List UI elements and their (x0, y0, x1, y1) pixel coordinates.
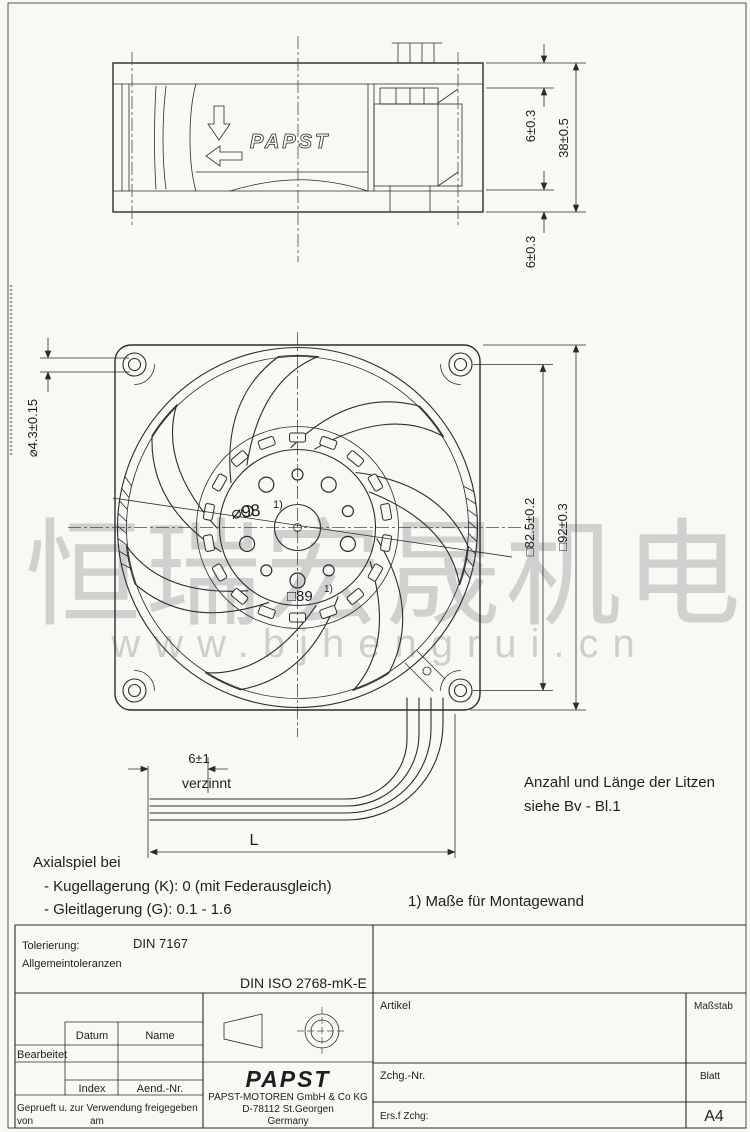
dim-impeller: ⌀98 (230, 501, 261, 523)
company-name: PAPST-MOTOREN GmbH & Co KG (208, 1092, 368, 1103)
hatch-line (120, 501, 128, 510)
dim-wire-length: L (250, 832, 259, 849)
aend-nr-label: Aend.-Nr. (137, 1083, 183, 1095)
mounting-hole-inner (455, 359, 467, 371)
dim-hub-square-ref: 1) (324, 584, 333, 595)
note-litzen-line2: siehe Bv - Bl.1 (524, 798, 621, 815)
tolerierung-label: Tolerierung: (22, 940, 79, 952)
note-montagewand: 1) Maße für Montagewand (408, 893, 584, 910)
note-kugellagerung: - Kugellagerung (K): 0 (mit Federausglei… (44, 878, 332, 895)
extension-lines (40, 358, 130, 372)
rotor-slot (346, 450, 364, 467)
hatch-line (466, 498, 476, 504)
artikel-label: Artikel (380, 1000, 411, 1012)
hub-hole (321, 477, 336, 492)
motor-mount (374, 104, 462, 186)
side-brand-logo: PAPST (250, 131, 330, 153)
terminal-block (380, 88, 438, 104)
lead-wires-top (392, 43, 442, 63)
drawing-sheet: 恒瑞宏晟机电 www.bjhengrui.cn PAPST (0, 0, 750, 1132)
company-address: D-78112 St.Georgen (242, 1104, 334, 1115)
fan-blade (230, 355, 318, 483)
mounting-hole-inner (129, 359, 141, 371)
allgemeintoleranzen-label: Allgemeintoleranzen (22, 958, 122, 970)
blade-silhouette (196, 172, 368, 191)
dim-depth: 38±0.5 (556, 118, 571, 158)
inlet-bell (190, 84, 196, 191)
rotor-slot (231, 450, 249, 467)
dim-flange-top: 6±0.3 (523, 110, 538, 142)
dim-impeller-ref: 1) (273, 499, 283, 511)
engineering-drawing: 恒瑞宏晟机电 www.bjhengrui.cn PAPST (0, 0, 750, 1132)
am-label: am (90, 1116, 104, 1127)
din-iso-value: DIN ISO 2768-mK-E (240, 975, 367, 991)
cable-channel-hole (423, 667, 431, 675)
name-header: Name (145, 1030, 174, 1042)
tinned-label: verzinnt (182, 775, 231, 791)
title-block-rows (15, 925, 746, 1128)
note-litzen-line1: Anzahl und Länge der Litzen (524, 774, 715, 791)
watermark: 恒瑞宏晟机电 www.bjhengrui.cn (25, 510, 745, 666)
motor-chamfers (438, 89, 458, 186)
dim-hole-pitch: □82.5±0.2 (522, 498, 537, 556)
blatt-label: Blatt (700, 1071, 720, 1082)
rotor-slot (319, 436, 337, 450)
company-country: Germany (267, 1116, 308, 1127)
company-logo: PAPST (246, 1066, 331, 1092)
dim-flange-bottom: 6±0.3 (523, 236, 538, 268)
rotor-slot (212, 473, 228, 491)
bearbeitet-label: Bearbeitet (17, 1049, 67, 1061)
ers-zchg-label: Ers.f Zchg: (380, 1111, 428, 1122)
notes: Anzahl und Länge der Litzen siehe Bv - B… (33, 774, 715, 918)
rotor-slot (258, 436, 276, 450)
rotation-arrow-icon (206, 146, 242, 166)
dim-frame: □92±0.3 (555, 503, 570, 551)
side-view-dimensions: 6±0.3 6±0.3 38±0.5 (486, 44, 586, 268)
dim-hub-square: □89 (287, 588, 313, 605)
geprueft-label: Geprueft u. zur Verwendung freigegeben (17, 1103, 198, 1114)
dim-tinned-length: 6±1 (188, 751, 210, 766)
massstab-label: Maßstab (694, 1001, 733, 1012)
rotor-slot (368, 473, 384, 491)
hub-hole (259, 477, 274, 492)
side-view: PAPST (113, 36, 483, 262)
dim-mounting-hole: ⌀4.3±0.15 (25, 399, 40, 457)
note-axialspiel-title: Axialspiel bei (33, 854, 121, 871)
von-label: von (17, 1116, 33, 1127)
title-block: Tolerierung: DIN 7167 Allgemeintoleranze… (15, 925, 746, 1128)
mounting-hole-inner (129, 685, 141, 697)
hatch-line (122, 489, 129, 498)
motor-boss (390, 186, 430, 212)
terminal-pins (396, 88, 424, 104)
datum-header: Datum (76, 1030, 108, 1042)
inlet-curves (155, 86, 167, 189)
inlet-lines (122, 84, 129, 191)
tolerierung-value: DIN 7167 (133, 936, 188, 951)
airflow-arrow-icon (208, 106, 230, 140)
projection-cone-icon (224, 1014, 262, 1048)
note-gleitlagerung: - Gleitlagerung (G): 0.1 - 1.6 (44, 901, 232, 918)
mounting-hole-inner (455, 685, 467, 697)
hatch-line (125, 476, 132, 486)
wire-detail: 6±1 verzinnt L (128, 698, 455, 858)
format-value: A4 (704, 1108, 724, 1125)
article-cell-rows (373, 1063, 746, 1102)
zchg-nr-label: Zchg.-Nr. (380, 1070, 425, 1082)
index-label: Index (79, 1083, 106, 1095)
